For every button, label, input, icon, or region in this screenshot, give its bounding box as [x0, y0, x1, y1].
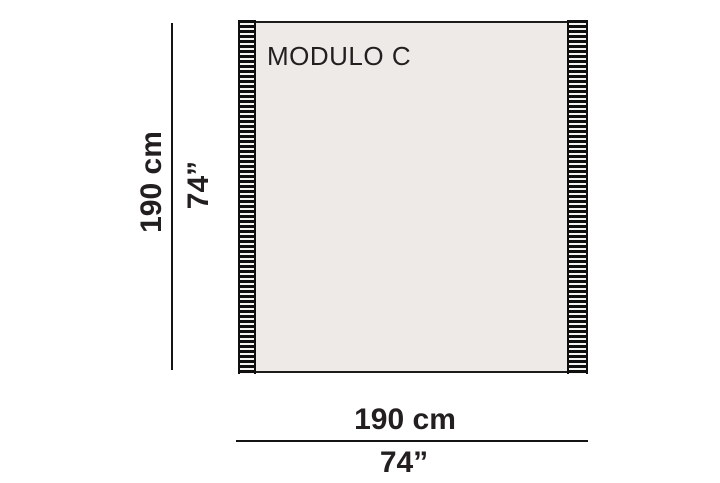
- fringe-left: [238, 20, 256, 374]
- width-label-inches: 74”: [304, 446, 504, 480]
- module-title: MODULO C: [267, 40, 411, 72]
- module-panel: MODULO C: [238, 21, 588, 373]
- width-label-cm: 190 cm: [305, 403, 505, 437]
- height-dimension-line: [171, 23, 173, 370]
- width-dimension-line: [236, 440, 588, 442]
- height-label-cm: 190 cm: [135, 112, 169, 252]
- fringe-right: [567, 20, 588, 374]
- module-diagram: MODULO C 190 cm 74” 190 cm 74”: [0, 0, 720, 483]
- height-label-inches: 74”: [182, 135, 216, 235]
